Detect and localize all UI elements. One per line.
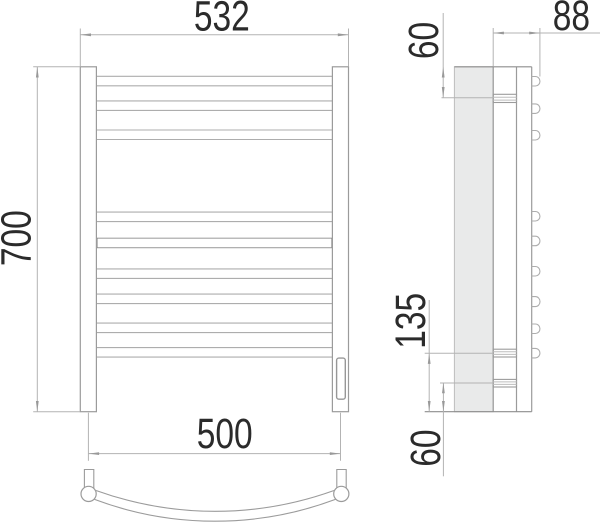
svg-text:60: 60: [402, 429, 450, 466]
svg-text:700: 700: [0, 210, 40, 266]
svg-text:532: 532: [194, 0, 250, 40]
svg-text:135: 135: [387, 293, 435, 349]
svg-text:88: 88: [553, 0, 590, 40]
svg-text:500: 500: [197, 410, 253, 458]
svg-text:60: 60: [400, 22, 448, 59]
